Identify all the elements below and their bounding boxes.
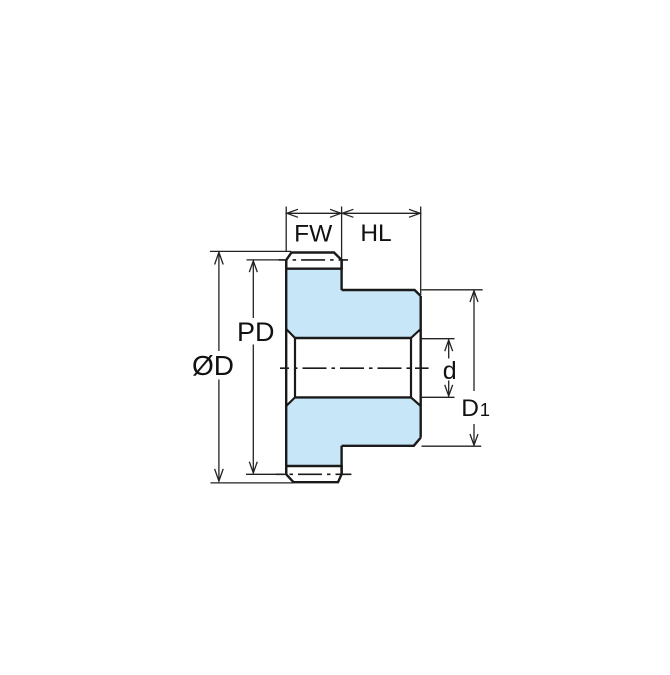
svg-text:1: 1 (480, 399, 490, 420)
svg-text:FW: FW (294, 221, 333, 248)
svg-text:ØD: ØD (192, 350, 234, 381)
svg-text:D: D (461, 395, 479, 422)
svg-text:PD: PD (237, 317, 275, 347)
svg-text:d: d (443, 357, 457, 385)
svg-text:HL: HL (360, 220, 391, 247)
